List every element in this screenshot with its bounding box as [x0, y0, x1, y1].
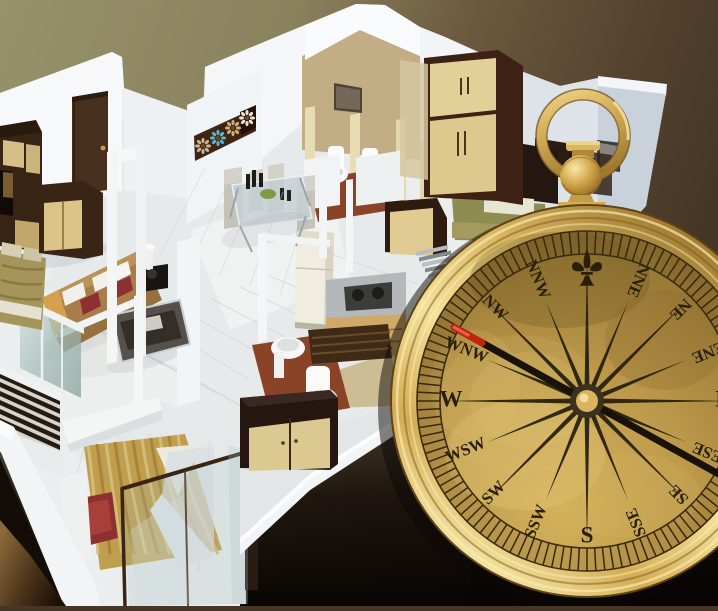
svg-text:W: W — [440, 386, 463, 411]
